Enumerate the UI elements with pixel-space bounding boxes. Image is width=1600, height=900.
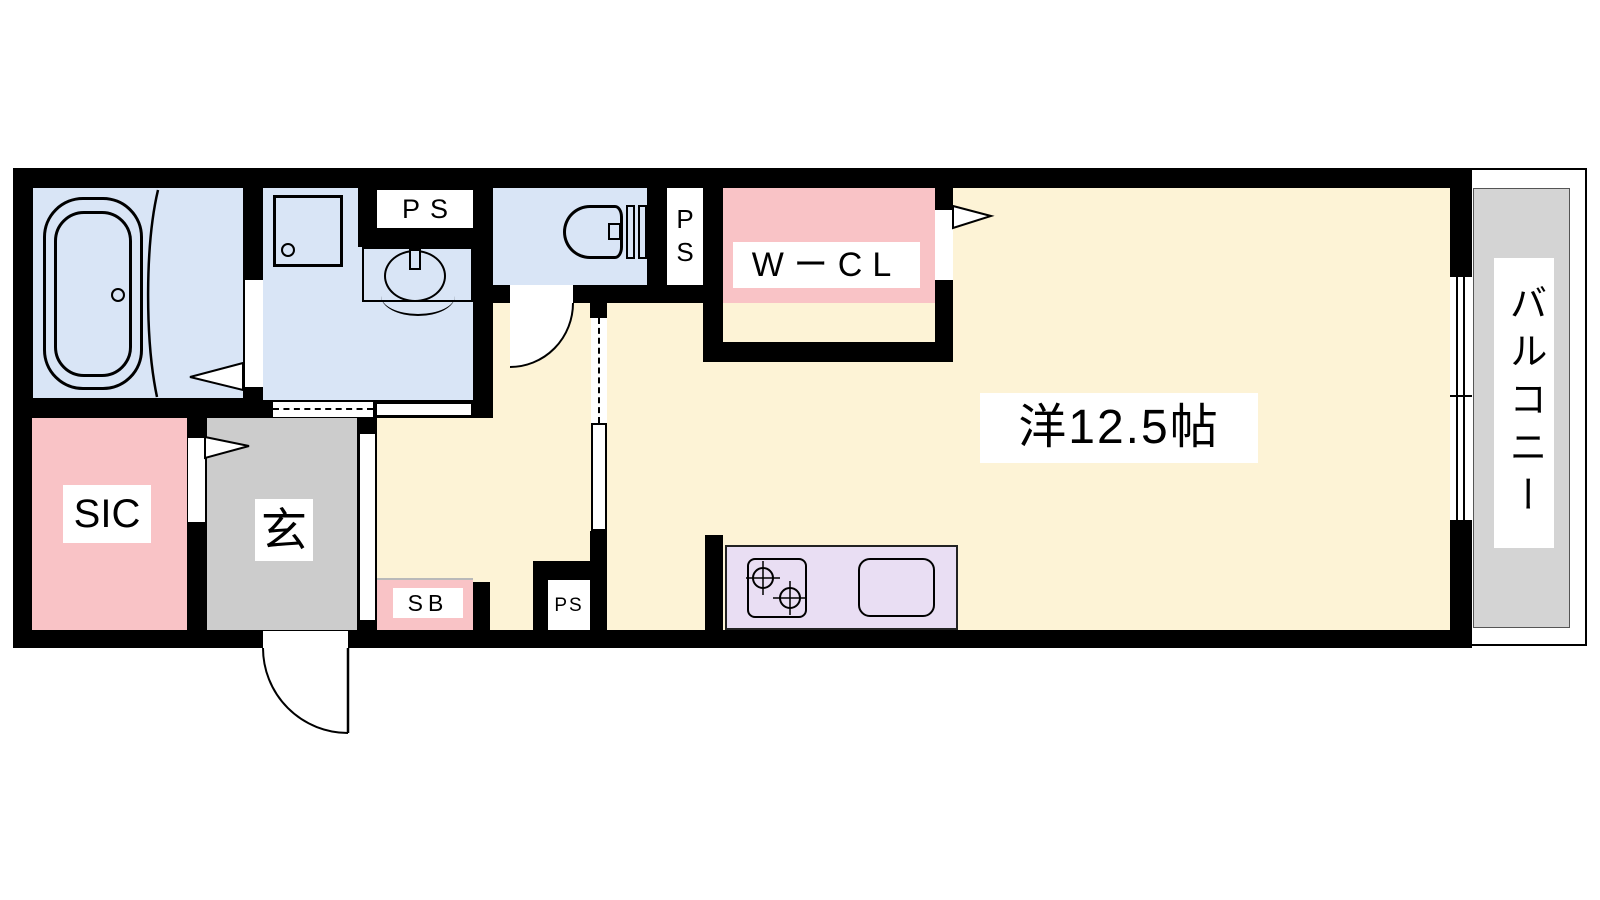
ps-top-label: PS	[377, 190, 473, 228]
toilet-bowl-notch	[608, 223, 621, 240]
wall-kitchen-stub	[705, 535, 723, 632]
wall-partition-stub-bottom	[590, 531, 607, 561]
genkan-step-strip	[358, 432, 377, 622]
vanity-faucet	[409, 249, 421, 270]
kitchen-sink	[858, 558, 935, 617]
ps-kitchen-label: PS	[548, 580, 590, 630]
wall-wcl-left	[703, 303, 723, 343]
toilet-tank-b	[638, 205, 647, 259]
main-room-label: 洋12.5帖	[980, 393, 1258, 463]
sic-label: SIC	[63, 485, 151, 543]
wall-wcl-right	[935, 280, 953, 362]
stove-burner-2	[779, 587, 801, 609]
wall-genkan-strip-stub-top	[358, 418, 377, 432]
balcony-label: バルコニー	[1494, 258, 1554, 548]
stove-burner-1	[752, 567, 774, 589]
bathtub-drain	[111, 288, 125, 302]
floor-plan: バルコニー PS PS PS	[0, 0, 1600, 900]
wcl-label: WーCL	[733, 242, 920, 288]
washroom-sliding-track-dashed	[273, 402, 373, 417]
sliding-door-panel	[591, 423, 607, 531]
sliding-door-track-dashed	[591, 318, 607, 423]
stove	[747, 558, 807, 618]
entrance-door-opening	[263, 631, 348, 648]
toilet-tank-a	[626, 205, 635, 259]
sic-door	[188, 438, 205, 522]
washer-drain	[281, 243, 295, 257]
wcl-door	[935, 210, 953, 280]
wall-partition-stub-top	[590, 292, 607, 318]
wall-wcl-bottom	[703, 342, 935, 362]
washroom-sliding-panel	[375, 402, 473, 417]
toilet-door-opening	[510, 285, 573, 303]
bathroom-door	[245, 280, 263, 387]
washer-pan	[273, 195, 343, 267]
wall-genkan-strip-stub-bottom	[358, 622, 377, 634]
sb-label: SB	[393, 588, 463, 618]
balcony-window	[1450, 277, 1472, 520]
wall-sb-right	[473, 582, 490, 648]
ps-toilet-label: PS	[667, 188, 703, 285]
genkan-label: 玄	[255, 499, 313, 561]
